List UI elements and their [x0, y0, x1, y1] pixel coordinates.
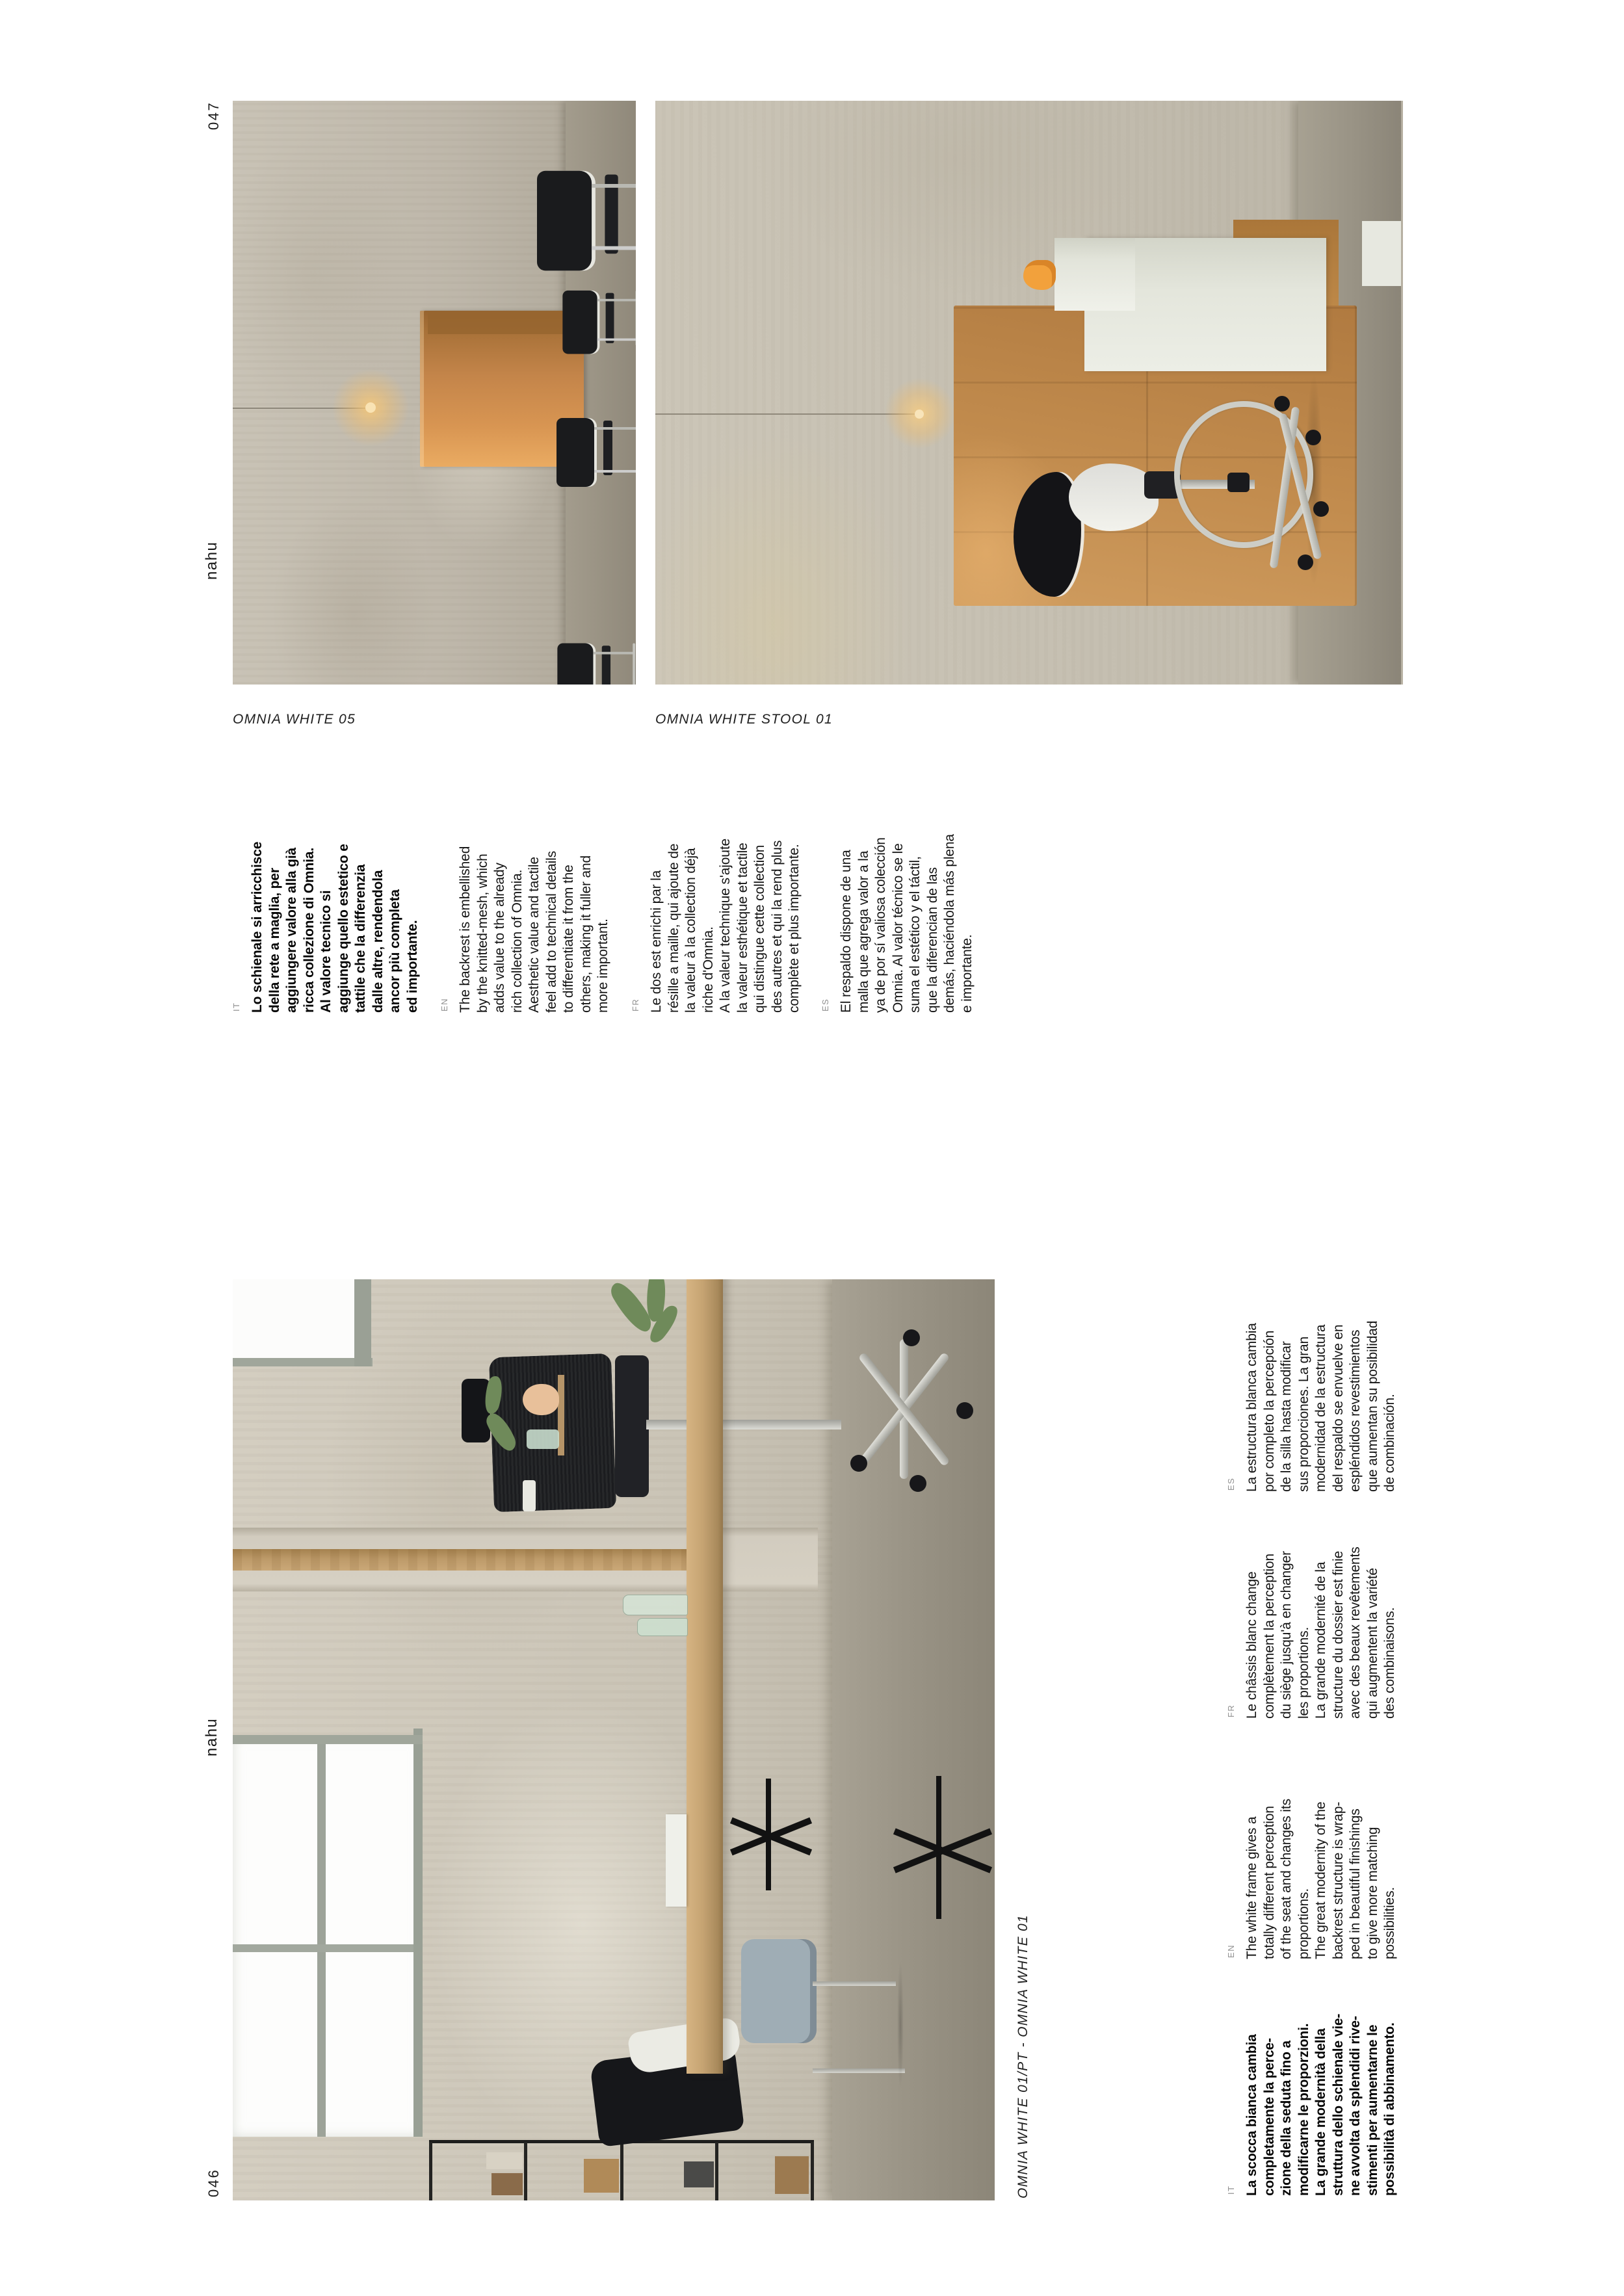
text-block-fr-top: FR Le dos est enrichi par la résille a m… — [631, 797, 804, 1013]
language-label-en: EN — [1226, 1743, 1236, 1958]
photo-omnia-white-stool-01 — [655, 101, 1403, 685]
photo-caption-omnia-white-stool-01: OMNIA WHITE STOOL 01 — [655, 712, 833, 727]
paragraph-fr: Le châssis blanc change complètement la … — [1244, 1503, 1399, 1719]
paragraph-en: The backrest is embellished by the knitt… — [457, 797, 612, 1013]
chair-blue-cushion — [741, 1939, 817, 2043]
paragraph-it: Lo schienale si arricchisce della rete a… — [249, 797, 421, 1013]
language-label-it: IT — [231, 797, 241, 1011]
glass-vase — [527, 1429, 559, 1449]
text-block-fr-bottom: FR Le châssis blanc change complètement … — [1226, 1503, 1399, 1719]
page-number-right: 047 — [205, 101, 222, 130]
photo-caption-omnia-white-05: OMNIA WHITE 05 — [233, 712, 356, 727]
stool-caster — [1305, 430, 1321, 445]
brand-wordmark-left: nahu — [203, 1718, 221, 1756]
stool-caster — [1274, 396, 1290, 411]
photo-omnia-white-01pt — [233, 1279, 995, 2200]
glass-bottle — [637, 1618, 688, 1636]
tan-high-table-side — [428, 311, 584, 334]
language-label-it: IT — [1226, 1980, 1236, 2195]
catalog-spread: 046 nahu nahu 047 — [0, 0, 1624, 2296]
text-block-en-bottom: EN The white frame gives a totally diffe… — [1226, 1743, 1399, 1959]
desk-trestle-leg — [728, 1771, 814, 1898]
paragraph-es: La estructura blanca cambia por completo… — [1244, 1276, 1399, 1492]
photo-caption-bottom: OMNIA WHITE 01/PT - OMNIA WHITE 01 — [1015, 1914, 1031, 2198]
white-desk-accessory — [666, 1814, 687, 1907]
stool-footring-hub — [1227, 473, 1250, 492]
language-label-en: EN — [439, 797, 449, 1011]
cantilever-chair — [557, 633, 636, 685]
cantilever-chair-foreground — [537, 156, 636, 279]
text-block-it-bottom: IT La scocca bianca cambia completamente… — [1226, 1980, 1399, 2196]
chair-star-base — [828, 1326, 984, 1492]
clay-pot — [523, 1384, 559, 1415]
cantilever-chair — [562, 281, 636, 359]
text-block-it-top: IT Lo schienale si arricchisce della ret… — [231, 797, 421, 1013]
language-label-fr: FR — [631, 797, 640, 1011]
language-label-es: ES — [1226, 1276, 1236, 1491]
paragraph-es: El respaldo dispone de una malla que agr… — [838, 797, 976, 1013]
language-label-fr: FR — [1226, 1503, 1236, 1717]
wood-desk-top — [687, 1279, 723, 2074]
white-cube-top — [1054, 238, 1135, 311]
cantilever-chair — [557, 408, 636, 492]
stool-caster — [1298, 554, 1313, 570]
pendant-bulb — [365, 402, 376, 413]
wood-upright-post — [233, 1549, 690, 1571]
brand-wordmark-right: nahu — [203, 541, 221, 580]
white-floor-slab — [1362, 221, 1401, 286]
catalog-screenshot: { "page": { "left_page_number": "046", "… — [0, 0, 1624, 2296]
pendant-bulb — [915, 410, 924, 419]
desk-trestle-leg-front — [891, 1766, 995, 1929]
orange-bird-ornament — [1023, 260, 1056, 290]
pendant-cord — [655, 413, 915, 415]
text-block-es-bottom: ES La estructura blanca cambia por compl… — [1226, 1276, 1399, 1492]
chair-seat — [615, 1355, 649, 1497]
chair-headrest — [462, 1379, 490, 1442]
paragraph-it: La scocca bianca cambia completamente la… — [1244, 1980, 1399, 2196]
window-right-pane — [233, 1279, 354, 1359]
black-shelving-unit — [429, 2138, 814, 2200]
chair-gas-lift — [646, 1420, 841, 1429]
photo-omnia-white-05 — [233, 101, 636, 685]
paragraph-fr: Le dos est enrichi par la résille a mail… — [648, 797, 804, 1013]
window-left-pane — [233, 1736, 421, 2137]
chair-white-bracket — [523, 1480, 536, 1511]
stool-caster — [1313, 501, 1329, 517]
glass-bottle — [623, 1595, 688, 1615]
language-label-es: ES — [820, 797, 830, 1011]
text-block-es-top: ES El respaldo dispone de una malla que … — [820, 797, 976, 1013]
paragraph-en: The white frame gives a totally differen… — [1244, 1743, 1399, 1959]
text-block-en-top: EN The backrest is embellished by the kn… — [439, 797, 612, 1013]
page-number-left: 046 — [205, 2169, 222, 2197]
